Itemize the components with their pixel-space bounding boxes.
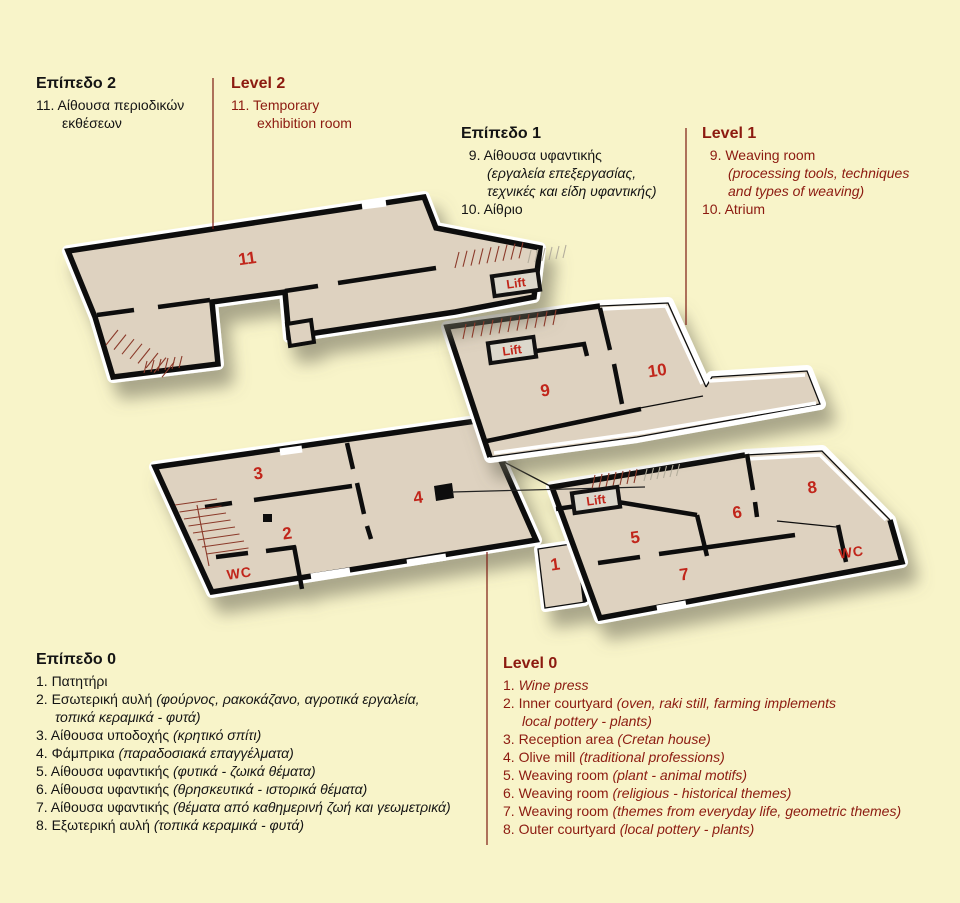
legend-line: 1. Wine press [503,676,953,694]
lift-label: Lift [505,275,527,292]
legend-item: 8. Εξωτερική αυλή (τοπικά κεραμικά - φυτ… [36,816,486,834]
legend-heading: Επίπεδο 2 [36,75,216,93]
legend-line: 2. Εσωτερική αυλή (φούρνος, ρακοκάζανο, … [36,690,486,708]
legend-item: 1. Wine press [503,676,953,694]
legend-item: 3. Αίθουσα υποδοχής (κρητικό σπίτι) [36,726,486,744]
legend-level0-english: Level 0 1. Wine press2. Inner courtyard … [503,655,953,838]
legend-item: 7. Αίθουσα υφαντικής (θέματα από καθημερ… [36,798,486,816]
legend-line: τεχνικές και είδη υφαντικής) [461,182,681,200]
legend-line: 3. Αίθουσα υποδοχής (κρητικό σπίτι) [36,726,486,744]
legend-list: 1. Wine press2. Inner courtyard (oven, r… [503,676,953,838]
legend-line: 4. Φάμπρικα (παραδοσιακά επαγγέλματα) [36,744,486,762]
ghost-stairs-hatch [563,245,566,258]
legend-list: 9. Αίθουσα υφαντικής(εργαλεία επεξεργασί… [461,146,681,218]
museum-floorplan-page: { "colors": { "background": "#f8f4c9", "… [0,0,960,903]
lift-label: Lift [501,342,523,359]
room-number-label: 10 [647,360,668,381]
lift-label: Lift [585,492,607,509]
legend-line: 10. Atrium [702,200,952,218]
legend-item: 4. Olive mill (traditional professions) [503,748,953,766]
legend-line: 4. Olive mill (traditional professions) [503,748,953,766]
legend-line: 2. Inner courtyard (oven, raki still, fa… [503,694,953,712]
shaft-pillar [287,320,314,346]
lift-box: Lift [488,337,536,363]
legend-heading: Επίπεδο 1 [461,125,681,143]
legend-line: 10. Αίθριο [461,200,681,218]
legend-line: 11. Temporary [231,96,411,114]
legend-line: 9. Αίθουσα υφαντικής [461,146,681,164]
legend-line: exhibition room [231,114,411,132]
legend-item: 5. Αίθουσα υφαντικής (φυτικά - ζωικά θέμ… [36,762,486,780]
legend-item: 9. Weaving room(processing tools, techni… [702,146,952,200]
legend-item: 11. Temporaryexhibition room [231,96,411,132]
legend-item: 9. Αίθουσα υφαντικής(εργαλεία επεξεργασί… [461,146,681,200]
room2-pillar [263,514,272,522]
legend-heading: Level 2 [231,75,411,93]
legend-heading: Level 0 [503,655,953,673]
legend-line: and types of weaving) [702,182,952,200]
legend-item: 6. Weaving room (religious - historical … [503,784,953,802]
legend-level0-greek: Επίπεδο 0 1. Πατητήρι2. Εσωτερική αυλή (… [36,651,486,834]
legend-line: (processing tools, techniques [702,164,952,182]
legend-line: 3. Reception area (Cretan house) [503,730,953,748]
ghost-stairs-hatch [556,246,559,259]
legend-line: 6. Weaving room (religious - historical … [503,784,953,802]
legend-level2-greek: Επίπεδο 2 11. Αίθουσα περιοδικώνεκθέσεων [36,75,216,132]
legend-line: 7. Weaving room (themes from everyday li… [503,802,953,820]
legend-level2-english: Level 2 11. Temporaryexhibition room [231,75,411,132]
legend-line: 8. Εξωτερική αυλή (τοπικά κεραμικά - φυτ… [36,816,486,834]
legend-item: 10. Αίθριο [461,200,681,218]
legend-line: 5. Αίθουσα υφαντικής (φυτικά - ζωικά θέμ… [36,762,486,780]
legend-item: 2. Inner courtyard (oven, raki still, fa… [503,694,953,730]
legend-item: 5. Weaving room (plant - animal motifs) [503,766,953,784]
legend-item: 11. Αίθουσα περιοδικώνεκθέσεων [36,96,216,132]
legend-line: (εργαλεία επεξεργασίας, [461,164,681,182]
legend-item: 3. Reception area (Cretan house) [503,730,953,748]
legend-item: 4. Φάμπρικα (παραδοσιακά επαγγέλματα) [36,744,486,762]
legend-item: 6. Αίθουσα υφαντικής (θρησκευτικά - ιστο… [36,780,486,798]
legend-heading: Επίπεδο 0 [36,651,486,669]
legend-item: 8. Outer courtyard (local pottery - plan… [503,820,953,838]
legend-line: 9. Weaving room [702,146,952,164]
legend-level1-greek: Επίπεδο 1 9. Αίθουσα υφαντικής(εργαλεία … [461,125,681,218]
legend-line: 11. Αίθουσα περιοδικών [36,96,216,114]
legend-item: 10. Atrium [702,200,952,218]
legend-line: 7. Αίθουσα υφαντικής (θέματα από καθημερ… [36,798,486,816]
room-number-label: 11 [237,248,257,269]
hall-door-gap [362,203,386,206]
lift-box: Lift [572,487,620,513]
legend-line: 6. Αίθουσα υφαντικής (θρησκευτικά - ιστο… [36,780,486,798]
legend-item: 1. Πατητήρι [36,672,486,690]
level1-plan [447,303,820,457]
legend-list: 11. Αίθουσα περιοδικώνεκθέσεων [36,96,216,132]
legend-list: 11. Temporaryexhibition room [231,96,411,132]
legend-line: 8. Outer courtyard (local pottery - plan… [503,820,953,838]
room4-pillar [434,483,454,501]
legend-list: 9. Weaving room(processing tools, techni… [702,146,952,218]
blockB-door-gap [657,604,686,609]
legend-level1-english: Level 1 9. Weaving room(processing tools… [702,125,952,218]
legend-line: τοπικά κεραμικά - φυτά) [36,708,486,726]
legend-line: 1. Πατητήρι [36,672,486,690]
ghost-stairs-hatch [549,247,552,260]
legend-heading: Level 1 [702,125,952,143]
legend-list: 1. Πατητήρι2. Εσωτερική αυλή (φούρνος, ρ… [36,672,486,834]
legend-line: 5. Weaving room (plant - animal motifs) [503,766,953,784]
legend-item: 2. Εσωτερική αυλή (φούρνος, ρακοκάζανο, … [36,690,486,726]
legend-line: εκθέσεων [36,114,216,132]
lift-box: Lift [492,270,540,296]
legend-item: 7. Weaving room (themes from everyday li… [503,802,953,820]
legend-line: local pottery - plants) [503,712,953,730]
